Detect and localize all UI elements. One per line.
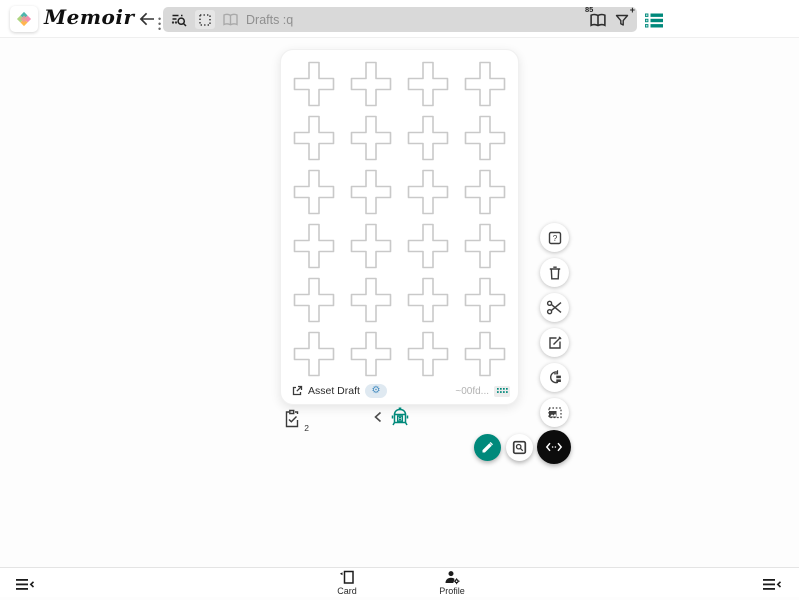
app-screen: Memoir •••	[0, 0, 799, 600]
cross-stencil	[350, 277, 392, 323]
cross-stencil	[407, 115, 449, 161]
filter-funnel-icon	[614, 12, 630, 28]
cross-stencil	[464, 115, 506, 161]
pencil-icon	[481, 441, 494, 454]
cross-stencil	[464, 277, 506, 323]
deck-count-button[interactable]: 85	[589, 12, 607, 28]
lantern-icon	[389, 406, 411, 428]
menu-collapse-icon	[762, 577, 784, 592]
menu-collapse-icon	[15, 577, 37, 592]
image-select-button[interactable]	[540, 398, 569, 427]
image-select-icon	[546, 404, 563, 421]
app-logo[interactable]	[10, 6, 38, 32]
export-icon[interactable]	[291, 385, 303, 397]
cross-stencil	[293, 61, 335, 107]
edit-button[interactable]	[540, 328, 569, 357]
fab-zoom-button[interactable]	[506, 434, 533, 461]
card-tab-icon	[338, 570, 356, 585]
manage-search-icon[interactable]	[170, 11, 188, 29]
cross-stencil	[464, 61, 506, 107]
card-tab-label: Card	[337, 586, 357, 596]
filter-plus-badge: +	[630, 5, 635, 15]
fab-code-button[interactable]	[537, 430, 571, 464]
card-id-text: ~00fd...	[455, 386, 489, 397]
gear-icon: ⚙	[371, 386, 380, 396]
help-box-icon: ?	[547, 230, 563, 246]
delete-button[interactable]	[540, 258, 569, 287]
clipboard-count-badge: 2	[304, 423, 309, 433]
swap-restore-button[interactable]	[540, 363, 569, 392]
deck-count-badge: 85	[585, 5, 593, 14]
chevron-left-icon[interactable]	[372, 410, 386, 426]
card-title: Asset Draft	[308, 385, 360, 397]
menu-right-button[interactable]	[762, 576, 784, 592]
dashed-selection-chip[interactable]	[195, 10, 215, 29]
cross-stencil	[350, 61, 392, 107]
clipboard-count-button[interactable]: 2	[283, 409, 309, 431]
cross-stencil-grid	[293, 61, 506, 378]
list-status-icon	[644, 12, 664, 29]
edit-box-icon	[547, 335, 563, 351]
profile-tab-label: Profile	[439, 586, 465, 596]
lantern-button[interactable]	[389, 406, 411, 428]
cross-stencil	[464, 331, 506, 377]
cross-stencil	[407, 277, 449, 323]
card-settings-button[interactable]: ⚙	[365, 384, 387, 398]
account-settings-icon	[444, 570, 461, 585]
cross-stencil	[293, 115, 335, 161]
book-icon	[589, 12, 607, 28]
back-button[interactable]	[138, 9, 158, 29]
zoom-box-icon	[512, 440, 527, 455]
card-footer: Asset Draft ⚙ ~00fd...	[291, 383, 510, 399]
book-dim-icon[interactable]	[222, 12, 239, 27]
search-bar[interactable]: Drafts :q 85 +	[163, 7, 637, 32]
cross-stencil	[407, 223, 449, 269]
cross-stencil	[293, 277, 335, 323]
cross-stencil	[350, 223, 392, 269]
search-query-text[interactable]: Drafts :q	[246, 13, 293, 27]
back-arrow-icon	[138, 10, 158, 28]
code-expand-icon	[545, 440, 563, 454]
trash-icon	[547, 265, 563, 281]
cross-stencil	[350, 115, 392, 161]
drag-handle-dots-icon[interactable]: •••	[158, 17, 161, 32]
bottom-nav: Card Profile	[0, 567, 799, 597]
dots-grid-icon	[497, 388, 508, 395]
cross-stencil	[293, 223, 335, 269]
cut-button[interactable]	[540, 293, 569, 322]
cross-stencil	[407, 169, 449, 215]
svg-text:?: ?	[552, 233, 557, 243]
cross-stencil	[464, 169, 506, 215]
cross-stencil	[293, 169, 335, 215]
menu-left-button[interactable]	[15, 576, 37, 592]
filter-button[interactable]: +	[614, 12, 630, 28]
top-bar: Memoir •••	[0, 0, 799, 38]
swap-restore-icon	[546, 369, 563, 386]
scissors-icon	[546, 299, 563, 316]
cross-stencil	[350, 331, 392, 377]
cross-stencil	[464, 223, 506, 269]
asset-draft-card[interactable]: Asset Draft ⚙ ~00fd...	[280, 49, 519, 405]
cross-stencil	[350, 169, 392, 215]
list-view-toggle-button[interactable]	[644, 11, 664, 29]
fab-edit-button[interactable]	[474, 434, 501, 461]
dashed-selection-icon	[198, 13, 212, 27]
help-button[interactable]: ?	[540, 223, 569, 252]
logo-diamond-icon	[15, 10, 33, 28]
app-title: Memoir	[44, 5, 135, 29]
cross-stencil	[407, 61, 449, 107]
cross-stencil	[293, 331, 335, 377]
tab-card[interactable]: Card	[315, 570, 379, 596]
cross-stencil	[407, 331, 449, 377]
dots-grid-button[interactable]	[494, 386, 510, 397]
tab-profile[interactable]: Profile	[420, 570, 484, 596]
